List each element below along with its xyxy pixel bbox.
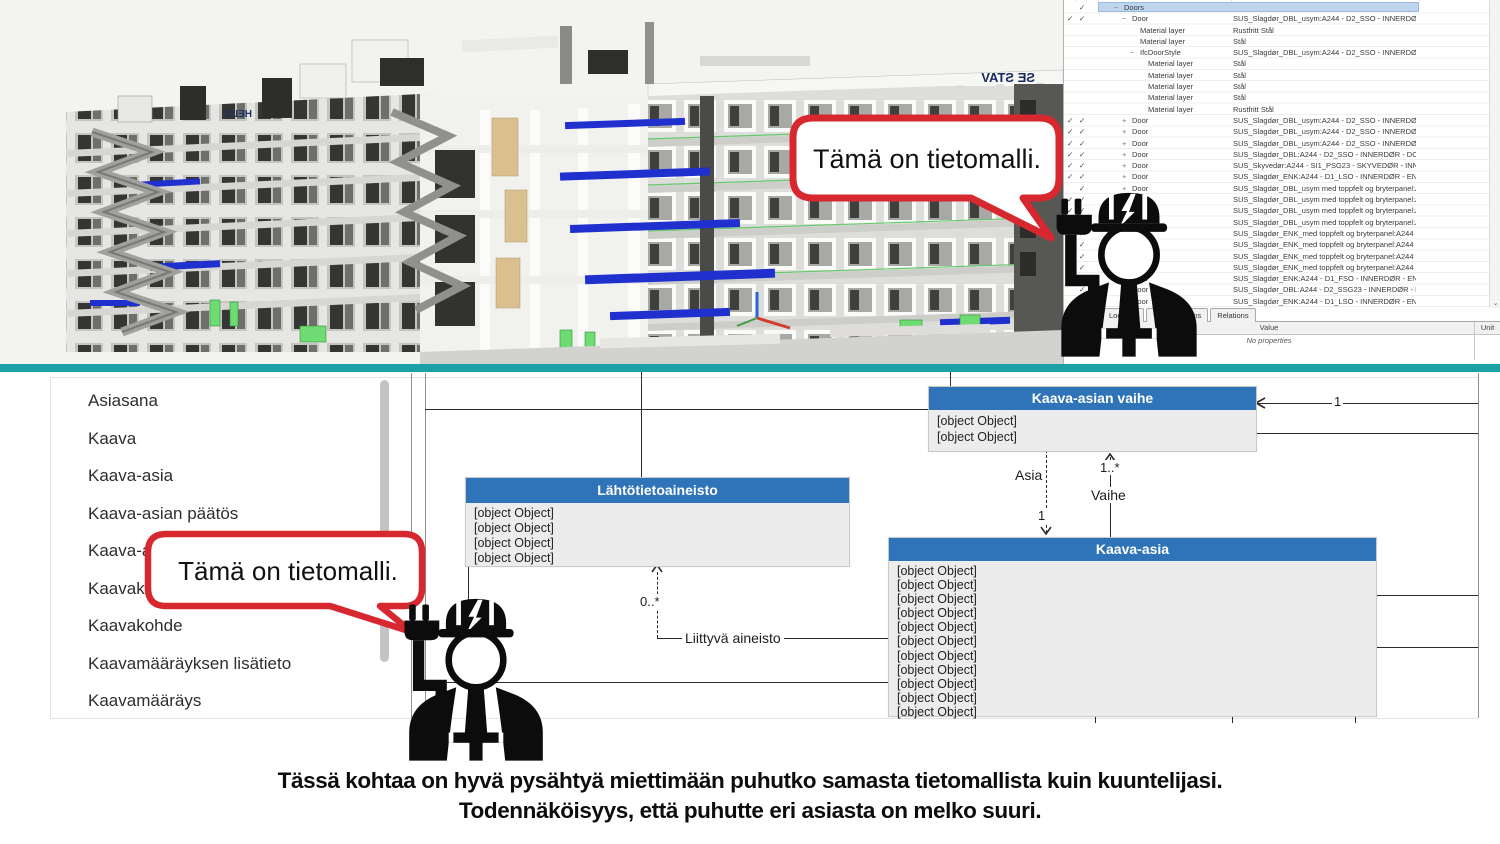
uml-attribute: [object Object]: [474, 506, 849, 521]
tree-node-label: Door: [1132, 149, 1148, 160]
uml-attribute: [object Object]: [897, 705, 1376, 719]
tree-node-value: SUS_Slagdør_DBL_usym:A244 - D2_SSO - INN…: [1233, 115, 1416, 126]
list-item[interactable]: Kaavamääräys: [88, 682, 291, 720]
checkbox-icon[interactable]: ✓: [1067, 13, 1073, 24]
list-item[interactable]: Kaava: [88, 420, 291, 458]
tree-node-value: Stål: [1233, 58, 1416, 69]
tree-node-label: Material layer: [1148, 70, 1193, 81]
building-sign-roof: SE STAV: [981, 70, 1035, 85]
tree-node-value: SUS_Slagdør_DBL:A244 - D2_SSG23 - INNERD…: [1233, 284, 1416, 295]
tree-node-label: Door: [1132, 138, 1148, 149]
table-row[interactable]: ✓ ✓ + Door SUS_Slagdør_DBL_usym:A244 - D…: [1064, 126, 1500, 137]
expander-icon[interactable]: −: [1130, 47, 1134, 58]
tree-node-label: Door: [1132, 126, 1148, 137]
bim-screenshot: SE STAV HELS ✓ ✓ − Doors: [0, 0, 1500, 364]
uml-attribute: [object Object]: [897, 649, 1376, 663]
tree-node-label: Material layer: [1148, 81, 1193, 92]
table-row[interactable]: ✓ ✓ Material layer Rustfritt Stål: [1064, 25, 1500, 36]
checkbox-icon[interactable]: ✓: [1079, 13, 1085, 24]
uml-attribute: [object Object]: [474, 551, 849, 566]
role-label-asia: Asia: [1012, 467, 1045, 483]
tree-node-value: SUS_Slagdør_DBL_usym:A244 - D2_SSO - INN…: [1233, 13, 1416, 24]
multiplicity-label: 1: [1332, 394, 1343, 409]
tree-node-value: SUS_Slagdør_DBL_usym med toppfelt og bry…: [1233, 205, 1416, 216]
table-row[interactable]: ✓ ✓ Material layer Stål: [1064, 58, 1500, 69]
uml-attribute: [object Object]: [897, 691, 1376, 705]
tree-node-value: SUS_Slagdør_ENK_med toppfelt og bryterpa…: [1233, 262, 1416, 273]
expander-icon[interactable]: +: [1122, 115, 1126, 126]
multiplicity-label: 1..*: [1098, 460, 1122, 475]
tree-node-value: SUS_Slagdør_DBL_usym:A244 - D2_SSO - INN…: [1233, 126, 1416, 137]
expander-icon[interactable]: +: [1122, 160, 1126, 171]
uml-attribute: [object Object]: [897, 564, 1376, 578]
table-row[interactable]: ✓ ✓ Material layer Stål: [1064, 36, 1500, 47]
uml-attribute: [object Object]: [897, 592, 1376, 606]
tree-node-label: Material layer: [1148, 58, 1193, 69]
uml-attribute: [object Object]: [897, 606, 1376, 620]
table-row[interactable]: ✓ ✓ + Door SUS_Skyvedør:A244 - SI1_PSG23…: [1064, 160, 1500, 171]
tree-node-value: Stål: [1233, 92, 1416, 103]
multiplicity-label: 1: [1036, 508, 1047, 523]
list-item[interactable]: Kaava-asian päätös: [88, 495, 291, 533]
tree-node-value: Stål: [1233, 70, 1416, 81]
tree-node-value: SUS_Slagdør_ENK:A244 - D1_LSO - INNERDØR…: [1233, 171, 1416, 182]
tree-node-value: SUS_Slagdør_ENK_med toppfelt og bryterpa…: [1233, 239, 1416, 250]
tree-node-value: SUS_Slagdør_ENK_med toppfelt og bryterpa…: [1233, 251, 1416, 262]
tree-node-value: Stål: [1233, 36, 1416, 47]
uml-class-kaava-asian-vaihe: Kaava-asian vaihe [object Object][object…: [928, 386, 1257, 452]
tree-node-label: Material layer: [1148, 92, 1193, 103]
uml-attribute: [object Object]: [474, 536, 849, 551]
uml-attribute: [object Object]: [897, 578, 1376, 592]
table-row[interactable]: ✓ ✓ Material layer Stål: [1064, 70, 1500, 81]
uml-class-kaava-asia: Kaava-asia [object Object][object Object…: [888, 537, 1377, 717]
tree-node-label: Material layer: [1140, 25, 1185, 36]
multiplicity-label: 0..*: [638, 594, 662, 609]
table-row[interactable]: ✓ ✓ + Door SUS_Slagdør_DBL_usym:A244 - D…: [1064, 115, 1500, 126]
expander-icon[interactable]: +: [1122, 126, 1126, 137]
panel-tab[interactable]: Relations: [1210, 308, 1255, 322]
uml-attribute: [object Object]: [897, 677, 1376, 691]
uml-class-title: Kaava-asian vaihe: [929, 387, 1256, 410]
tree-node-value: SUS_Slagdør_DBL_usym:A244 - D2_SSO - INN…: [1233, 47, 1416, 58]
uml-attribute: [object Object]: [897, 620, 1376, 634]
checkbox-icon[interactable]: ✓: [1079, 2, 1085, 13]
table-row[interactable]: ✓ ✓ + Door SUS_Slagdør_DBL_usym:A244 - D…: [1064, 138, 1500, 149]
caption-line-2: Todennäköisyys, että puhutte eri asiasta…: [0, 796, 1500, 826]
table-row[interactable]: ✓ ✓ − IfcDoorStyle SUS_Slagdør_DBL_usym:…: [1064, 47, 1500, 58]
table-row[interactable]: ✓ ✓ − Doors: [1064, 2, 1500, 13]
tree-node-value: SUS_Skyvedør:A244 - SI1_PSG23 - SKYVEDØR…: [1233, 160, 1416, 171]
list-item[interactable]: Kaava-asia: [88, 457, 291, 495]
table-row[interactable]: ✓ ✓ Material layer Stål: [1064, 92, 1500, 103]
caption-line-1: Tässä kohtaa on hyvä pysähtyä miettimään…: [0, 766, 1500, 796]
tree-node-value: Rustfritt Stål: [1233, 104, 1416, 115]
list-item[interactable]: Kaavamääräyksen lisätieto: [88, 645, 291, 683]
tree-node-value: Rustfritt Stål: [1233, 25, 1416, 36]
expander-icon[interactable]: +: [1122, 149, 1126, 160]
uml-class-title: Lähtötietoaineisto: [466, 478, 849, 503]
speech-bubble-uml: Tämä on tietomalli.: [140, 528, 440, 648]
svg-text:Tämä on tietomalli.: Tämä on tietomalli.: [178, 556, 398, 586]
table-row[interactable]: ✓ ✓ + Door SUS_Slagdør_DBL:A244 - D2_SSO…: [1064, 149, 1500, 160]
electrician-worker-icon: [396, 590, 556, 762]
tree-node-value: SUS_Slagdør_ENK_med toppfelt og bryterpa…: [1233, 228, 1416, 239]
uml-attribute: [object Object]: [897, 663, 1376, 677]
slide-caption: Tässä kohtaa on hyvä pysähtyä miettimään…: [0, 766, 1500, 826]
tree-scrollbar[interactable]: ⌄: [1489, 0, 1500, 308]
electrician-worker-icon: [1048, 182, 1210, 360]
table-row[interactable]: ✓ ✓ Material layer Rustfritt Stål: [1064, 104, 1500, 115]
uml-diagram-section: AsiasanaKaavaKaava-asiaKaava-asian päätö…: [0, 372, 1500, 722]
table-row[interactable]: ✓ ✓ Material layer Stål: [1064, 81, 1500, 92]
teal-divider: [0, 364, 1500, 372]
uml-attribute: [object Object]: [897, 634, 1376, 648]
expander-icon[interactable]: −: [1114, 2, 1118, 13]
tree-node-value: Stål: [1233, 81, 1416, 92]
tree-node-label: Doors: [1124, 2, 1144, 13]
expander-icon[interactable]: −: [1122, 13, 1126, 24]
tree-node-value: SUS_Slagdør_DBL_usym med toppfelt og bry…: [1233, 183, 1416, 194]
unit-column-header: Unit: [1474, 322, 1500, 334]
uml-attribute: [object Object]: [474, 521, 849, 536]
tree-node-value: SUS_Slagdør_ENK:A244 - D1_FSO - INNERDØR…: [1233, 273, 1416, 284]
tree-node-label: Material layer: [1148, 104, 1193, 115]
tree-node-value: SUS_Slagdør_DBL_usym:A244 - D2_SSO - INN…: [1233, 138, 1416, 149]
expander-icon[interactable]: +: [1122, 138, 1126, 149]
svg-text:Tämä on tietomalli.: Tämä on tietomalli.: [813, 144, 1041, 174]
tree-node-label: IfcDoorStyle: [1140, 47, 1181, 58]
uml-attribute: [object Object]: [937, 413, 1256, 429]
list-item[interactable]: Asiasana: [88, 382, 291, 420]
role-label-vaihe: Vaihe: [1088, 487, 1129, 503]
uml-class-lahtotietoaineisto: Lähtötietoaineisto [object Object][objec…: [465, 477, 850, 567]
tree-node-value: SUS_Slagdør_DBL:A244 - D2_SSO - INNERDØR…: [1233, 149, 1416, 160]
tree-node-label: Door: [1132, 160, 1148, 171]
table-row[interactable]: ✓ ✓ − Door SUS_Slagdør_DBL_usym:A244 - D…: [1064, 13, 1500, 24]
arrowhead-down-icon: [1040, 525, 1052, 536]
tree-node-value: SUS_Slagdør_DBL_usym med toppfelt og bry…: [1233, 194, 1416, 205]
tree-node-label: Material layer: [1140, 36, 1185, 47]
uml-class-title: Kaava-asia: [889, 538, 1376, 561]
tree-node-label: Door: [1132, 13, 1148, 24]
uml-attribute: [object Object]: [937, 429, 1256, 445]
tree-node-value: SUS_Slagdør_DBL_usym med toppfelt og bry…: [1233, 217, 1416, 228]
tree-node-label: Door: [1132, 115, 1148, 126]
slide: SE STAV HELS ✓ ✓ − Doors: [0, 0, 1500, 844]
role-label-liittyva-aineisto: Liittyvä aineisto: [682, 630, 784, 646]
building-sign-center: HELS: [225, 109, 252, 120]
